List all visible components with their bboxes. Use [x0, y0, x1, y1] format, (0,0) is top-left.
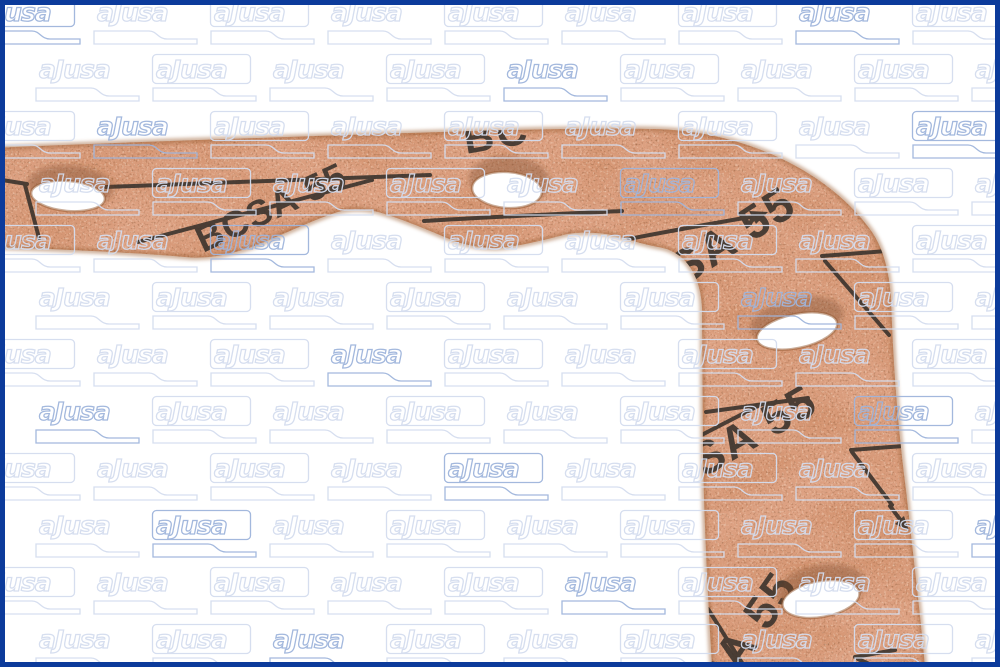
gasket-image: BCBCSA 55SA 55SA 55SA 55 [0, 0, 1000, 667]
product-photo: BCBCSA 55SA 55SA 55SA 55 aJusaaJusaaJusa… [0, 0, 1000, 667]
